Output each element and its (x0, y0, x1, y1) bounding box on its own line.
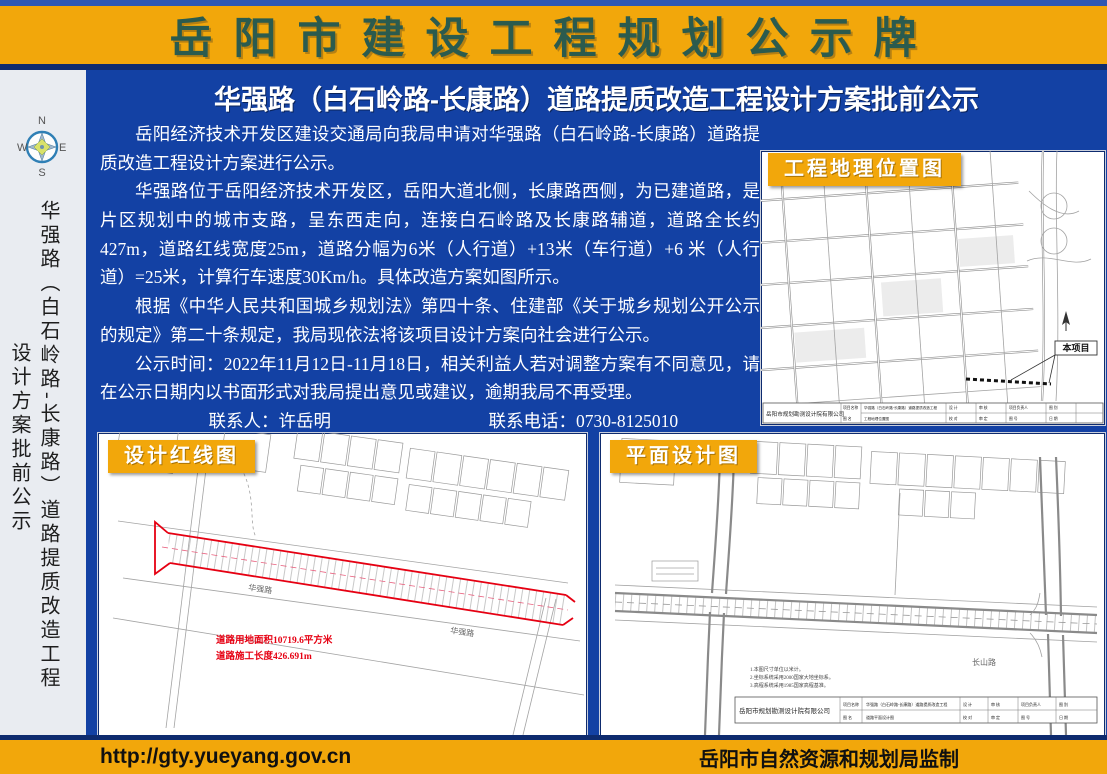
titleblock-project-name: 华强路（白石岭路-长康路）道路提质改造工程 (866, 701, 947, 707)
plan-title-block: 岳阳市规划勘测设计院有限公司 项目名称 图 名 华强路（白石岭路-长康路）道路提… (735, 697, 1097, 723)
road-name-label: 华强路 (248, 582, 273, 595)
footer-credit: 岳阳市自然资源和规划局监制 (699, 743, 959, 772)
sidebar-vertical-subtitle: 设计方案批前公示 (5, 342, 34, 534)
compass-e-label: E (59, 142, 66, 154)
titleblock-no: 图 号 (1021, 714, 1030, 720)
notice-paragraph: 华强路位于岳阳经济技术开发区，岳阳大道北侧，长康路西侧，为已建道路，是片区规划中… (100, 177, 760, 292)
titleblock-drawing-label: 图 名 (843, 416, 852, 421)
redline-length-note: 道路施工长度426.691m (216, 650, 312, 662)
highway-interchange (1027, 151, 1091, 401)
titleblock-design: 设 计 (949, 405, 958, 410)
titleblock-review: 审 核 (979, 405, 988, 410)
titleblock-approve: 审 定 (991, 714, 1000, 720)
titleblock-company: 岳阳市规划勘测设计院有限公司 (739, 706, 830, 715)
titleblock-project-label: 项目名称 (843, 405, 858, 410)
location-map-drawing: 本项目 岳阳市规划勘测设计院有限公司 项目名称 图 名 华强路（白石岭路-长康路… (761, 151, 1105, 425)
project-dashed-line (966, 379, 1051, 384)
footer: http://gty.yueyang.gov.cn 岳阳市自然资源和规划局监制 (0, 740, 1107, 774)
project-callout: 本项目 (1011, 341, 1097, 383)
notice-paragraph: 根据《中华人民共和国城乡规划法》第四十条、住建部《关于城乡规划公开公示的规定》第… (100, 292, 760, 349)
street-grid (761, 151, 1042, 421)
titleblock-no: 图 号 (1009, 416, 1018, 421)
banner: 岳阳市建设工程规划公示牌 (0, 6, 1107, 64)
titleblock-lead: 项目负责人 (1021, 701, 1041, 707)
plan-note: 1.本图尺寸单位以米计。 (750, 666, 804, 673)
project-callout-label: 本项目 (1062, 342, 1089, 353)
plan-map-label: 平面设计图 (610, 440, 757, 473)
titleblock-date: 日 期 (1049, 416, 1058, 421)
plan-notes: 1.本图尺寸单位以米计。 2.坐标系统采用2000国家大地坐标系。 3.高程系统… (750, 666, 834, 689)
road-name-label: 华强路 (450, 625, 475, 638)
sidebar: N W E S 华强路（白石岭路-长康路）道路提质改造工程 设计方案批前公示 (0, 70, 86, 735)
redline-map-panel: 华强路 华强路 道路用地面积10719.6平方米 道路施工长度426.691m … (97, 432, 588, 737)
compass-s-label: S (38, 167, 45, 179)
titleblock-type: 图 别 (1059, 701, 1068, 707)
titleblock-drawing-label: 图 名 (843, 714, 852, 720)
sidebar-vertical-title: 华强路（白石岭路-长康路）道路提质改造工程 (34, 200, 63, 691)
plan-note: 2.坐标系统采用2000国家大地坐标系。 (750, 674, 834, 681)
notice-title: 华强路（白石岭路-长康路）道路提质改造工程设计方案批前公示 (86, 78, 1107, 117)
location-title-block: 岳阳市规划勘测设计院有限公司 项目名称 图 名 华强路（白石岭路-长康路）道路提… (763, 403, 1103, 423)
titleblock-date: 日 期 (1059, 714, 1068, 720)
titleblock-type: 图 别 (1049, 405, 1058, 410)
redline-map-drawing: 华强路 华强路 道路用地面积10719.6平方米 道路施工长度426.691m (98, 433, 587, 736)
titleblock-check: 校 对 (963, 714, 972, 720)
titleblock-project-label: 项目名称 (843, 701, 859, 707)
location-map-panel: 本项目 岳阳市规划勘测设计院有限公司 项目名称 图 名 华强路（白石岭路-长康路… (760, 150, 1106, 426)
titleblock-project-name: 华强路（白石岭路-长康路）道路提质改造工程 (864, 405, 937, 410)
compass-n-label: N (38, 115, 46, 127)
compass-icon: N W E S (13, 112, 71, 180)
road-name-label: 长山路 (972, 657, 996, 667)
notice-paragraph: 公示时间：2022年11月12日-11月18日，相关利益人若对调整方案有不同意见… (100, 350, 760, 407)
location-map-label: 工程地理位置图 (768, 153, 961, 186)
banner-title: 岳阳市建设工程规划公示牌 (170, 4, 938, 66)
notice-paragraph: 岳阳经济技术开发区建设交通局向我局申请对华强路（白石岭路-长康路）道路提质改造工… (100, 120, 760, 177)
compass-w-label: W (17, 142, 28, 154)
titleblock-check: 校 对 (949, 416, 958, 421)
titleblock-approve: 审 定 (979, 416, 988, 421)
titleblock-drawing-name: 道路平面设计图 (866, 714, 894, 720)
titleblock-drawing-name: 工程地理位置图 (864, 416, 890, 421)
redline-map-label: 设计红线图 (108, 440, 255, 473)
main-road (615, 585, 1097, 642)
titleblock-company: 岳阳市规划勘测设计院有限公司 (766, 410, 844, 418)
plan-map-drawing: 长山路 1.本图尺寸单位以米计。 2.坐标系统采用2000国家大地坐标系。 3.… (600, 433, 1105, 736)
plan-map-panel: 长山路 1.本图尺寸单位以米计。 2.坐标系统采用2000国家大地坐标系。 3.… (599, 432, 1106, 737)
footer-url: http://gty.yueyang.gov.cn (100, 745, 351, 769)
north-arrow-icon (1062, 311, 1070, 331)
redline-corridor (155, 522, 575, 625)
titleblock-design: 设 计 (963, 701, 972, 707)
redline-area-note: 道路用地面积10719.6平方米 (216, 634, 333, 646)
titleblock-lead: 项目负责人 (1009, 405, 1028, 410)
titleblock-review: 审 核 (991, 701, 1000, 707)
plan-note: 3.高程系统采用1985国家高程基准。 (750, 682, 829, 689)
notice-body: 岳阳经济技术开发区建设交通局向我局申请对华强路（白石岭路-长康路）道路提质改造工… (100, 120, 760, 436)
